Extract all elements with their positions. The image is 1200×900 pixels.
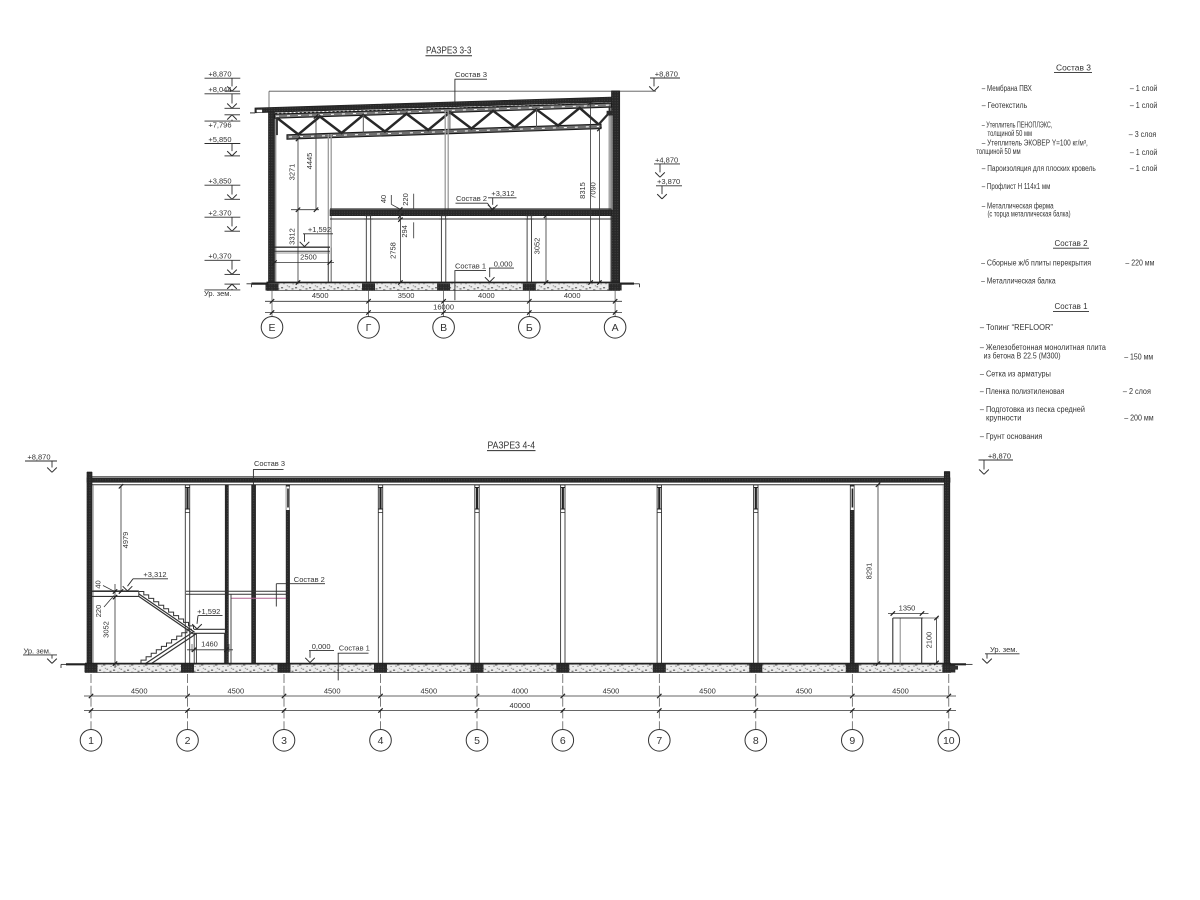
svg-text:40000: 40000 — [509, 701, 530, 710]
svg-text:+5,850: +5,850 — [208, 135, 231, 144]
svg-text:– 150 мм: – 150 мм — [1124, 353, 1153, 362]
svg-text:– Грунт основания: – Грунт основания — [980, 432, 1043, 441]
svg-text:4500: 4500 — [892, 686, 909, 695]
svg-text:4500: 4500 — [324, 686, 341, 695]
svg-text:9: 9 — [849, 735, 855, 747]
svg-text:Состав 2: Состав 2 — [294, 575, 325, 584]
svg-text:7: 7 — [656, 735, 662, 747]
svg-text:Состав 2: Состав 2 — [1055, 238, 1088, 248]
svg-text:+7,796: +7,796 — [208, 120, 231, 129]
svg-text:– Пароизоляция для плоских кро: – Пароизоляция для плоских кровель — [982, 164, 1096, 173]
svg-text:Состав 1: Состав 1 — [339, 644, 370, 653]
svg-text:– 200 мм: – 200 мм — [1124, 414, 1154, 423]
svg-text:Состав 3: Состав 3 — [1056, 63, 1091, 73]
svg-text:4: 4 — [378, 735, 384, 747]
svg-text:7090: 7090 — [588, 182, 597, 199]
svg-text:3312: 3312 — [287, 228, 296, 245]
svg-text:– Профлист Н 114х1 мм: – Профлист Н 114х1 мм — [982, 182, 1051, 191]
svg-text:– 1 слой: – 1 слой — [1130, 148, 1158, 157]
svg-text:8315: 8315 — [578, 182, 587, 199]
svg-text:4000: 4000 — [478, 291, 495, 300]
svg-text:10: 10 — [943, 735, 955, 747]
svg-text:из бетона В 22.5 (М300): из бетона В 22.5 (М300) — [984, 351, 1061, 360]
svg-text:2758: 2758 — [389, 242, 398, 259]
svg-text:8291: 8291 — [865, 563, 874, 580]
svg-text:6: 6 — [560, 735, 566, 747]
svg-text:– 2 слоя: – 2 слоя — [1123, 387, 1151, 396]
svg-text:4500: 4500 — [603, 686, 620, 695]
svg-text:+8,044: +8,044 — [208, 85, 231, 94]
svg-text:4979: 4979 — [121, 532, 130, 549]
svg-text:+8,870: +8,870 — [27, 452, 50, 461]
svg-text:2: 2 — [185, 735, 191, 747]
svg-text:294: 294 — [400, 225, 409, 238]
svg-text:толщиной 50 мм: толщиной 50 мм — [988, 129, 1033, 138]
svg-text:+3,870: +3,870 — [657, 177, 680, 186]
svg-text:4445: 4445 — [305, 153, 314, 170]
svg-text:Е: Е — [268, 322, 275, 334]
svg-text:+3,850: +3,850 — [208, 177, 231, 186]
svg-text:РАЗРЕЗ 3-3: РАЗРЕЗ 3-3 — [426, 45, 472, 57]
svg-text:Состав 1: Состав 1 — [455, 261, 486, 270]
svg-text:– Сборные ж/б плиты перекрытия: – Сборные ж/б плиты перекрытия — [981, 258, 1091, 267]
svg-text:+8,870: +8,870 — [655, 69, 678, 78]
svg-text:4500: 4500 — [420, 686, 437, 695]
svg-text:40: 40 — [94, 580, 103, 588]
svg-text:3052: 3052 — [102, 621, 111, 638]
svg-text:Состав 1: Состав 1 — [1055, 301, 1088, 311]
svg-text:Ур. зем.: Ур. зем. — [204, 289, 232, 298]
svg-text:+1,592: +1,592 — [197, 607, 220, 616]
svg-text:4500: 4500 — [131, 686, 148, 695]
svg-text:4000: 4000 — [512, 686, 529, 695]
svg-text:– Топинг “REFLOOR”: – Топинг “REFLOOR” — [980, 323, 1053, 332]
svg-text:(с торца металлическая балка): (с торца металлическая балка) — [988, 210, 1071, 219]
svg-text:– 1 слой: – 1 слой — [1130, 84, 1158, 93]
svg-text:220: 220 — [94, 605, 103, 618]
svg-text:1: 1 — [88, 735, 94, 747]
svg-text:4500: 4500 — [227, 686, 244, 695]
svg-text:3500: 3500 — [398, 291, 415, 300]
svg-text:+3,312: +3,312 — [491, 189, 514, 198]
svg-text:– 3 слоя: – 3 слоя — [1129, 130, 1157, 139]
svg-text:2500: 2500 — [300, 253, 317, 262]
svg-text:А: А — [612, 322, 619, 334]
svg-text:40: 40 — [379, 195, 388, 203]
svg-text:3052: 3052 — [533, 238, 542, 255]
svg-text:+4,870: +4,870 — [655, 155, 678, 164]
svg-text:крупности: крупности — [986, 414, 1022, 423]
svg-text:– 220 мм: – 220 мм — [1125, 258, 1154, 267]
svg-text:1350: 1350 — [899, 604, 916, 613]
svg-text:– 1 слой: – 1 слой — [1130, 164, 1158, 173]
svg-text:Состав 2: Состав 2 — [456, 194, 487, 203]
svg-text:РАЗРЕЗ 4-4: РАЗРЕЗ 4-4 — [488, 439, 536, 451]
svg-text:3271: 3271 — [287, 164, 296, 181]
svg-text:+0,370: +0,370 — [208, 252, 231, 261]
svg-text:+1,592: +1,592 — [308, 225, 331, 234]
svg-text:0,000: 0,000 — [312, 642, 331, 651]
svg-text:– Мембрана ПВХ: – Мембрана ПВХ — [982, 84, 1033, 93]
svg-text:В: В — [440, 322, 447, 334]
svg-text:4500: 4500 — [312, 291, 329, 300]
svg-text:Ур. зем.: Ур. зем. — [990, 645, 1018, 654]
svg-text:5: 5 — [474, 735, 480, 747]
svg-text:+3,312: +3,312 — [143, 570, 166, 579]
svg-text:Состав 3: Состав 3 — [254, 459, 285, 468]
svg-text:16000: 16000 — [433, 303, 454, 312]
svg-text:+8,870: +8,870 — [988, 451, 1011, 460]
svg-text:220: 220 — [401, 193, 410, 206]
svg-text:Ур. зем.: Ур. зем. — [23, 646, 51, 655]
svg-text:+2.370: +2.370 — [208, 209, 231, 218]
svg-text:4500: 4500 — [796, 686, 813, 695]
svg-text:4000: 4000 — [564, 291, 581, 300]
svg-text:Г: Г — [366, 322, 372, 334]
svg-text:– Пленка полиэтиленовая: – Пленка полиэтиленовая — [980, 387, 1065, 396]
svg-text:0,000: 0,000 — [494, 260, 513, 269]
svg-text:– 1 слой: – 1 слой — [1130, 101, 1158, 110]
svg-text:8: 8 — [753, 735, 759, 747]
svg-text:2100: 2100 — [925, 632, 934, 649]
svg-text:1460: 1460 — [201, 639, 218, 648]
svg-text:3: 3 — [281, 735, 287, 747]
svg-text:– Сетка из арматуры: – Сетка из арматуры — [980, 370, 1051, 379]
svg-text:толщиной 50 мм: толщиной 50 мм — [976, 147, 1021, 156]
svg-text:4500: 4500 — [699, 686, 716, 695]
svg-text:+8,870: +8,870 — [208, 70, 231, 79]
svg-text:– Геотекстиль: – Геотекстиль — [982, 101, 1028, 110]
svg-text:Состав 3: Состав 3 — [455, 70, 487, 79]
svg-text:Б: Б — [526, 322, 533, 334]
svg-text:– Металлическая балка: – Металлическая балка — [981, 277, 1056, 286]
